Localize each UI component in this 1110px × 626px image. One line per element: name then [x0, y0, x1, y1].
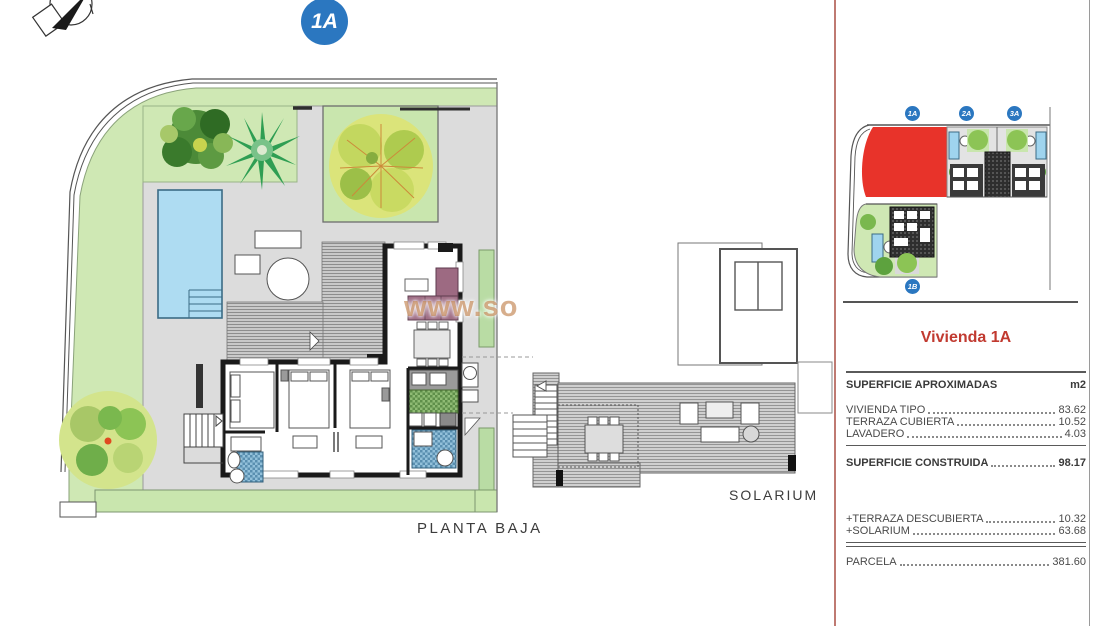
surface-row: +SOLARIUM 63.68 — [846, 525, 1086, 537]
panel-divider-line — [834, 0, 836, 626]
row-value: 10.32 — [1058, 513, 1086, 525]
row-label: LAVADERO — [846, 428, 904, 440]
surface-row: VIVIENDA TIPO 83.62 — [846, 404, 1086, 416]
kitchen — [408, 370, 458, 426]
panel-rule — [846, 445, 1086, 446]
bathroom-left — [228, 452, 263, 483]
sitemap-badge-1a: 1A — [905, 106, 920, 121]
dining-table — [414, 322, 450, 366]
unit-1b — [854, 204, 937, 277]
panel-rule — [846, 371, 1086, 373]
surface-row: +TERRAZA DESCUBIERTA 10.32 — [846, 513, 1086, 525]
row-label: +SOLARIUM — [846, 525, 910, 537]
panel-header-unit: m2 — [1070, 379, 1086, 392]
surface-info-panel: Vivienda 1A SUPERFICIE APROXIMADAS m2 VI… — [846, 329, 1086, 568]
tree-yellow — [329, 114, 433, 218]
sitemap-badge-1b: 1B — [905, 279, 920, 294]
sunbed — [255, 231, 301, 248]
panel-header: SUPERFICIE APROXIMADAS m2 — [846, 379, 1086, 392]
solarium-label: SOLARIUM — [729, 487, 818, 503]
bedrooms — [230, 370, 390, 451]
row-label: SUPERFICIE CONSTRUIDA — [846, 457, 988, 469]
compass-north-icon — [33, 0, 93, 36]
unit-badge-1a: 1A — [301, 0, 348, 45]
site-locator-map — [843, 107, 1078, 302]
floorplan-brochure: { "header": { "unit_badge": "1A" }, "com… — [0, 0, 1110, 626]
row-label: VIVIENDA TIPO — [846, 404, 925, 416]
solarium-plan — [513, 243, 832, 487]
total-row: SUPERFICIE CONSTRUIDA 98.17 — [846, 456, 1086, 469]
side-table — [235, 255, 260, 274]
panel-double-rule — [846, 542, 1086, 547]
dotted-leader — [900, 564, 1050, 566]
page-border-line — [1089, 0, 1090, 626]
dotted-leader — [991, 465, 1055, 467]
tree-bottom-left — [59, 391, 157, 489]
row-value: 10.52 — [1058, 416, 1086, 428]
round-table — [267, 258, 309, 300]
surface-row: LAVADERO 4.03 — [846, 428, 1086, 440]
row-value: 4.03 — [1065, 428, 1086, 440]
watermark: www.solarium — [404, 291, 612, 324]
panel-title: Vivienda 1A — [846, 329, 1086, 347]
row-value: 63.68 — [1058, 525, 1086, 537]
dotted-leader — [907, 436, 1061, 438]
dotted-leader — [986, 521, 1055, 523]
row-label: PARCELA — [846, 556, 897, 568]
units-2a-3a — [947, 127, 1047, 197]
row-value: 98.17 — [1058, 457, 1086, 469]
sitemap-badge-2a: 2A — [959, 106, 974, 121]
row-value: 83.62 — [1058, 404, 1086, 416]
swimming-pool — [158, 190, 222, 318]
row-label: +TERRAZA DESCUBIERTA — [846, 513, 983, 525]
unit-1a-highlight — [862, 127, 947, 197]
sitemap-badge-3a: 3A — [1007, 106, 1022, 121]
panel-header-label: SUPERFICIE APROXIMADAS — [846, 379, 997, 392]
bathroom-right — [412, 430, 456, 468]
surface-row: TERRAZA CUBIERTA 10.52 — [846, 416, 1086, 428]
dotted-leader — [928, 412, 1055, 414]
dotted-leader — [913, 533, 1056, 535]
row-label: TERRAZA CUBIERTA — [846, 416, 954, 428]
row-value: 381.60 — [1052, 556, 1086, 568]
dotted-leader — [957, 424, 1055, 426]
parcel-row: PARCELA 381.60 — [846, 556, 1086, 568]
ground-floor-label: PLANTA BAJA — [417, 520, 543, 537]
